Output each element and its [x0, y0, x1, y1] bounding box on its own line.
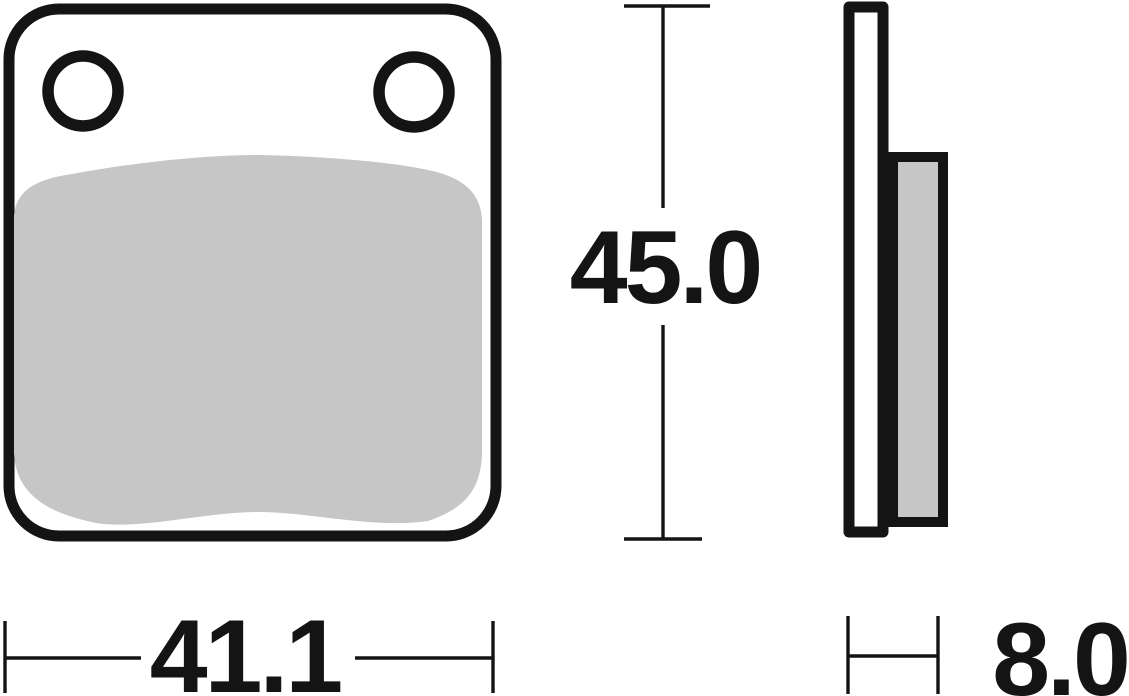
thickness-dimension: 8.0	[848, 602, 1128, 696]
drawing-canvas: 45.0 41.1 8.0	[0, 0, 1129, 696]
width-dimension-label: 41.1	[150, 599, 341, 696]
height-dimension-label: 45.0	[570, 210, 760, 326]
thickness-dimension-label: 8.0	[992, 602, 1128, 696]
mounting-hole-left	[48, 56, 118, 126]
front-view	[9, 9, 496, 536]
side-friction-material	[893, 157, 943, 522]
height-dimension: 45.0	[570, 6, 760, 539]
brake-pad-technical-drawing: 45.0 41.1 8.0	[0, 0, 1129, 696]
width-dimension: 41.1	[5, 599, 493, 696]
side-view	[849, 7, 943, 532]
mounting-hole-right	[379, 57, 449, 127]
front-friction-material	[14, 155, 482, 525]
side-backing-plate-outline	[849, 7, 883, 532]
